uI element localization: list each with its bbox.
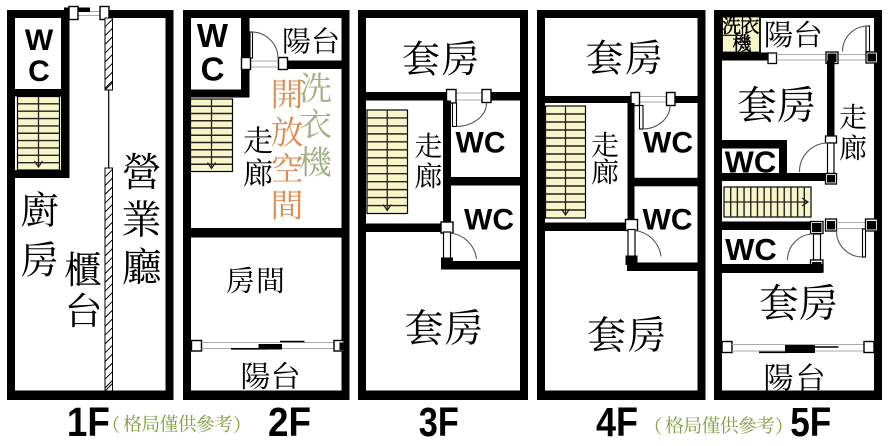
- svg-text:WC: WC: [725, 145, 777, 180]
- svg-text:C: C: [201, 50, 225, 87]
- svg-text:WC: WC: [643, 127, 693, 160]
- svg-text:WC: WC: [464, 204, 514, 237]
- svg-text:5F: 5F: [790, 399, 831, 445]
- svg-text:4F: 4F: [596, 399, 638, 445]
- svg-text:WC: WC: [456, 127, 506, 160]
- svg-text:WC: WC: [643, 204, 693, 237]
- svg-text:2F: 2F: [268, 399, 311, 445]
- svg-text:WC: WC: [725, 232, 777, 267]
- svg-text:1F: 1F: [67, 399, 110, 445]
- svg-text:W: W: [197, 17, 229, 54]
- svg-text:C: C: [28, 55, 50, 88]
- svg-text:W: W: [25, 24, 54, 57]
- svg-text:3F: 3F: [419, 399, 459, 445]
